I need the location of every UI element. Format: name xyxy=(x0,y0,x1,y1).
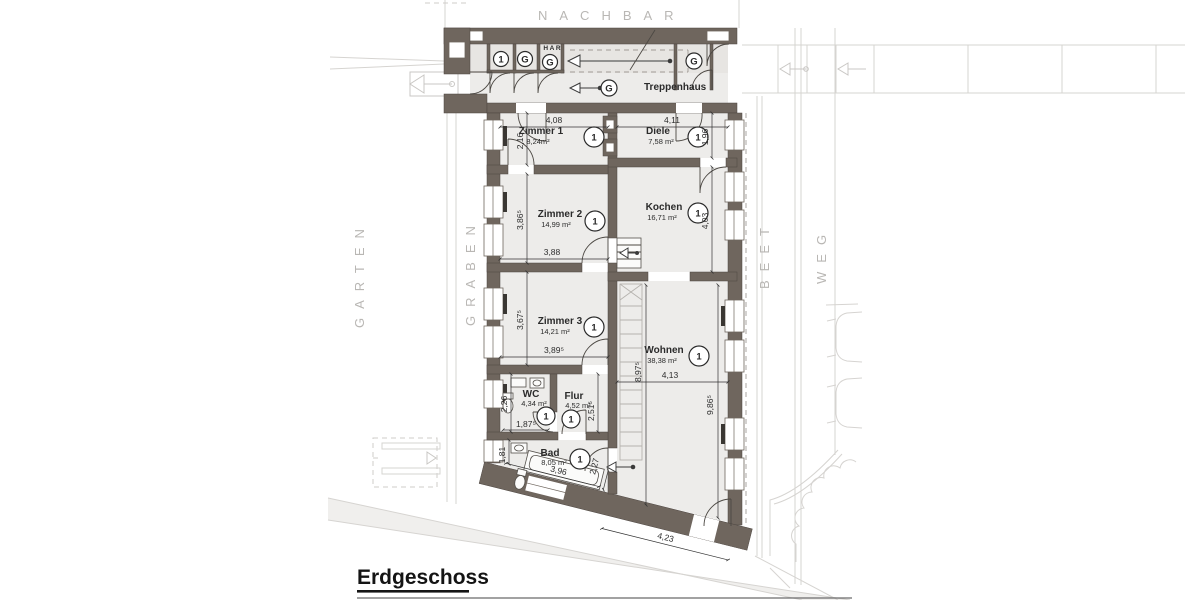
wall-top xyxy=(444,28,737,44)
dim-wc-width: 1,87⁵ xyxy=(516,419,536,429)
wall-west-upper xyxy=(444,94,487,113)
car-outline xyxy=(827,312,862,362)
storage-marker: G xyxy=(518,52,533,67)
svg-text:Zimmer 1: Zimmer 1 xyxy=(519,126,564,137)
door-gap xyxy=(676,103,702,113)
storage-marker: G xyxy=(686,53,702,69)
dim-zimmer2-depth: 3,86⁵ xyxy=(515,210,525,230)
floor-title: Erdgeschoss xyxy=(357,566,489,589)
svg-text:1: 1 xyxy=(577,455,583,466)
svg-text:1: 1 xyxy=(498,55,504,66)
svg-text:14,21 m²: 14,21 m² xyxy=(540,327,570,336)
svg-text:1: 1 xyxy=(591,133,597,144)
svg-text:G: G xyxy=(546,58,553,69)
dim-bad-depth: 1,81 xyxy=(497,446,507,463)
exit-arrow-left-icon xyxy=(410,72,458,96)
dim-zimmer1-depth: 2,16 xyxy=(515,132,525,149)
dim-wohnen-bottom: 4,23 xyxy=(656,530,675,544)
floorplan-page: NACHBAR GARTEN GRABEN BEET WEG xyxy=(0,0,1200,600)
svg-text:Zimmer 2: Zimmer 2 xyxy=(538,209,583,220)
floorplan-drawing: NACHBAR GARTEN GRABEN BEET WEG xyxy=(0,0,1200,600)
dim-wc-depth: 2,26 xyxy=(499,395,509,412)
dim-wohnen-depth-right: 9,86⁵ xyxy=(705,395,715,415)
dim-diele-width: 4,11 xyxy=(664,115,680,125)
ramp-symbol xyxy=(373,438,440,487)
walkway-arrow-icon xyxy=(780,63,808,75)
dim-zimmer2-width: 3,88 xyxy=(544,247,561,257)
treppenhaus-label: Treppenhaus xyxy=(644,82,707,93)
label-nachbar: NACHBAR xyxy=(538,8,686,23)
curved-path xyxy=(770,450,838,556)
dim-zimmer1-width: 4,08 xyxy=(546,115,563,125)
svg-text:Wohnen: Wohnen xyxy=(644,345,683,356)
kitchen-steps-symbol xyxy=(617,238,641,268)
svg-text:7,58 m²: 7,58 m² xyxy=(648,137,674,146)
dim-wohnen-width: 4,13 xyxy=(662,370,679,380)
svg-text:G: G xyxy=(521,55,528,66)
label-weg: WEG xyxy=(814,226,829,284)
building: 3,96 4,23 xyxy=(444,28,758,564)
label-beet: BEET xyxy=(757,219,772,289)
svg-text:1: 1 xyxy=(568,415,574,426)
svg-text:16,71 m²: 16,71 m² xyxy=(647,213,677,222)
dim-kochen-depth: 4,03 xyxy=(700,212,710,229)
windows-east xyxy=(725,120,744,490)
har-label: H A R xyxy=(543,45,561,52)
label-garten: GARTEN xyxy=(352,220,367,328)
svg-text:G: G xyxy=(605,84,612,95)
svg-text:Zimmer 3: Zimmer 3 xyxy=(538,316,583,327)
svg-text:Diele: Diele xyxy=(646,126,670,137)
walkway-arrow-icon xyxy=(838,63,866,75)
svg-text:Kochen: Kochen xyxy=(646,202,683,213)
svg-text:38,38 m²: 38,38 m² xyxy=(647,356,677,365)
window-top xyxy=(707,31,729,41)
svg-text:G: G xyxy=(690,57,697,68)
svg-text:14,99 m²: 14,99 m² xyxy=(541,220,571,229)
svg-text:1: 1 xyxy=(543,412,549,423)
dim-zimmer3-depth: 3,67⁵ xyxy=(515,310,525,330)
storage-marker: G xyxy=(601,80,617,96)
svg-text:8,24m²: 8,24m² xyxy=(526,137,550,146)
title-underline xyxy=(357,590,469,593)
svg-text:8,05 m²: 8,05 m² xyxy=(541,458,567,467)
svg-text:1: 1 xyxy=(592,217,598,228)
site-context: NACHBAR GARTEN GRABEN BEET WEG xyxy=(328,0,1185,600)
svg-text:1: 1 xyxy=(591,323,597,334)
dim-wohnen-depth-left: 8,97⁵ xyxy=(633,362,643,382)
door-gap xyxy=(516,103,546,113)
label-graben: GRABEN xyxy=(463,217,478,326)
room-label-wohnen: Wohnen 38,38 m² 1 xyxy=(644,345,709,366)
dim-diele-depth: 1,96 xyxy=(700,128,710,145)
dim-flur-depth: 2,51⁵ xyxy=(586,401,596,421)
svg-text:1: 1 xyxy=(696,352,702,363)
unit-marker: 1 xyxy=(494,52,509,67)
storage-marker: G xyxy=(543,55,558,70)
car-outline xyxy=(827,378,862,428)
svg-text:4,34 m²: 4,34 m² xyxy=(521,399,547,408)
dim-zimmer3-width: 3,89⁵ xyxy=(544,345,564,355)
window-west xyxy=(449,42,465,58)
